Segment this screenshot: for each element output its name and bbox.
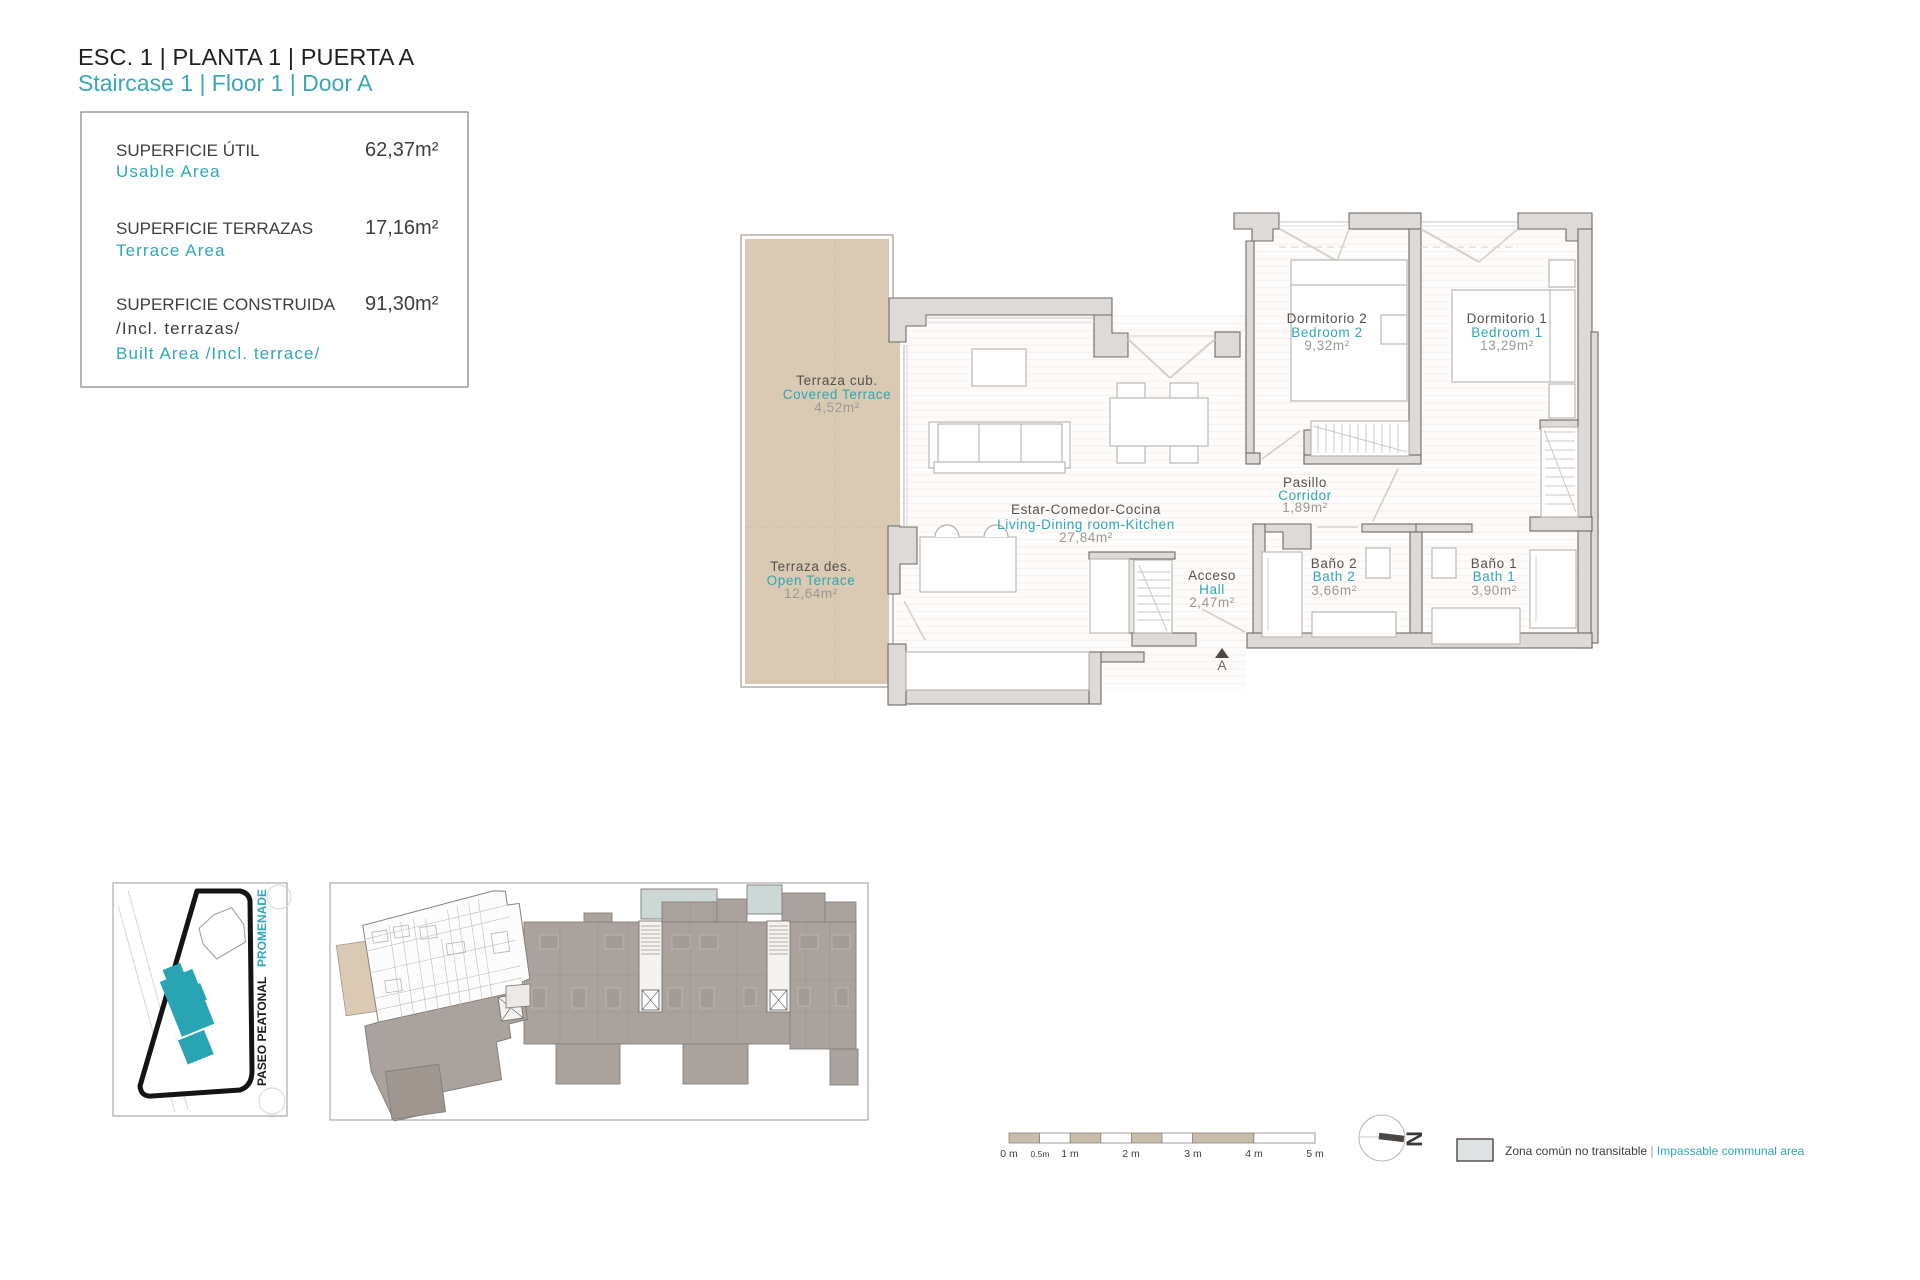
svg-text:4 m: 4 m <box>1245 1148 1263 1160</box>
svg-text:Bath 1: Bath 1 <box>1473 569 1516 584</box>
svg-text:1,89m²: 1,89m² <box>1282 500 1328 515</box>
svg-text:0.5m: 0.5m <box>1031 1149 1050 1159</box>
svg-text:Staircase 1 | Floor 1 | Door A: Staircase 1 | Floor 1 | Door A <box>78 70 373 96</box>
svg-text:1 m: 1 m <box>1061 1148 1079 1160</box>
svg-text:3,90m²: 3,90m² <box>1471 583 1517 598</box>
svg-text:Built Area /Incl. terrace/: Built Area /Incl. terrace/ <box>116 344 320 363</box>
svg-text:62,37m²: 62,37m² <box>365 139 439 161</box>
svg-text:Usable Area: Usable Area <box>116 162 221 181</box>
svg-text:SUPERFICIE CONSTRUIDA: SUPERFICIE CONSTRUIDA <box>116 295 336 314</box>
svg-text:Terraza des.: Terraza des. <box>770 559 851 574</box>
svg-text:A: A <box>1217 658 1226 673</box>
svg-text:Acceso: Acceso <box>1188 568 1236 583</box>
svg-text:Terrace Area: Terrace Area <box>116 241 226 260</box>
svg-text:/Incl. terrazas/: /Incl. terrazas/ <box>116 319 240 338</box>
svg-text:SUPERFICIE ÚTIL: SUPERFICIE ÚTIL <box>116 141 260 160</box>
svg-text:4,52m²: 4,52m² <box>814 400 860 415</box>
svg-text:N: N <box>1402 1131 1427 1147</box>
svg-text:PROMENADE: PROMENADE <box>255 889 269 967</box>
svg-text:0 m: 0 m <box>1000 1148 1018 1160</box>
svg-text:Dormitorio 1: Dormitorio 1 <box>1467 311 1548 326</box>
svg-text:91,30m²: 91,30m² <box>365 293 439 315</box>
svg-text:Dormitorio 2: Dormitorio 2 <box>1287 311 1368 326</box>
svg-text:Zona común no transitable | Im: Zona común no transitable | Impassable c… <box>1505 1144 1805 1158</box>
svg-text:ESC. 1 | PLANTA 1 | PUERTA A: ESC. 1 | PLANTA 1 | PUERTA A <box>78 44 415 70</box>
svg-text:2,47m²: 2,47m² <box>1189 595 1235 610</box>
svg-text:9,32m²: 9,32m² <box>1304 338 1350 353</box>
svg-text:PASEO PEATONAL: PASEO PEATONAL <box>255 977 269 1086</box>
svg-text:2 m: 2 m <box>1122 1148 1140 1160</box>
svg-text:27,84m²: 27,84m² <box>1059 530 1113 545</box>
svg-text:17,16m²: 17,16m² <box>365 217 439 239</box>
svg-text:3 m: 3 m <box>1184 1148 1202 1160</box>
svg-text:SUPERFICIE TERRAZAS: SUPERFICIE TERRAZAS <box>116 219 313 238</box>
svg-text:5 m: 5 m <box>1306 1148 1324 1160</box>
svg-text:3,66m²: 3,66m² <box>1311 583 1357 598</box>
svg-text:12,64m²: 12,64m² <box>784 586 838 601</box>
svg-text:Bath 2: Bath 2 <box>1313 569 1356 584</box>
svg-text:Terraza cub.: Terraza cub. <box>796 373 877 388</box>
svg-text:Estar-Comedor-Cocina: Estar-Comedor-Cocina <box>1011 502 1161 517</box>
svg-text:13,29m²: 13,29m² <box>1480 338 1534 353</box>
